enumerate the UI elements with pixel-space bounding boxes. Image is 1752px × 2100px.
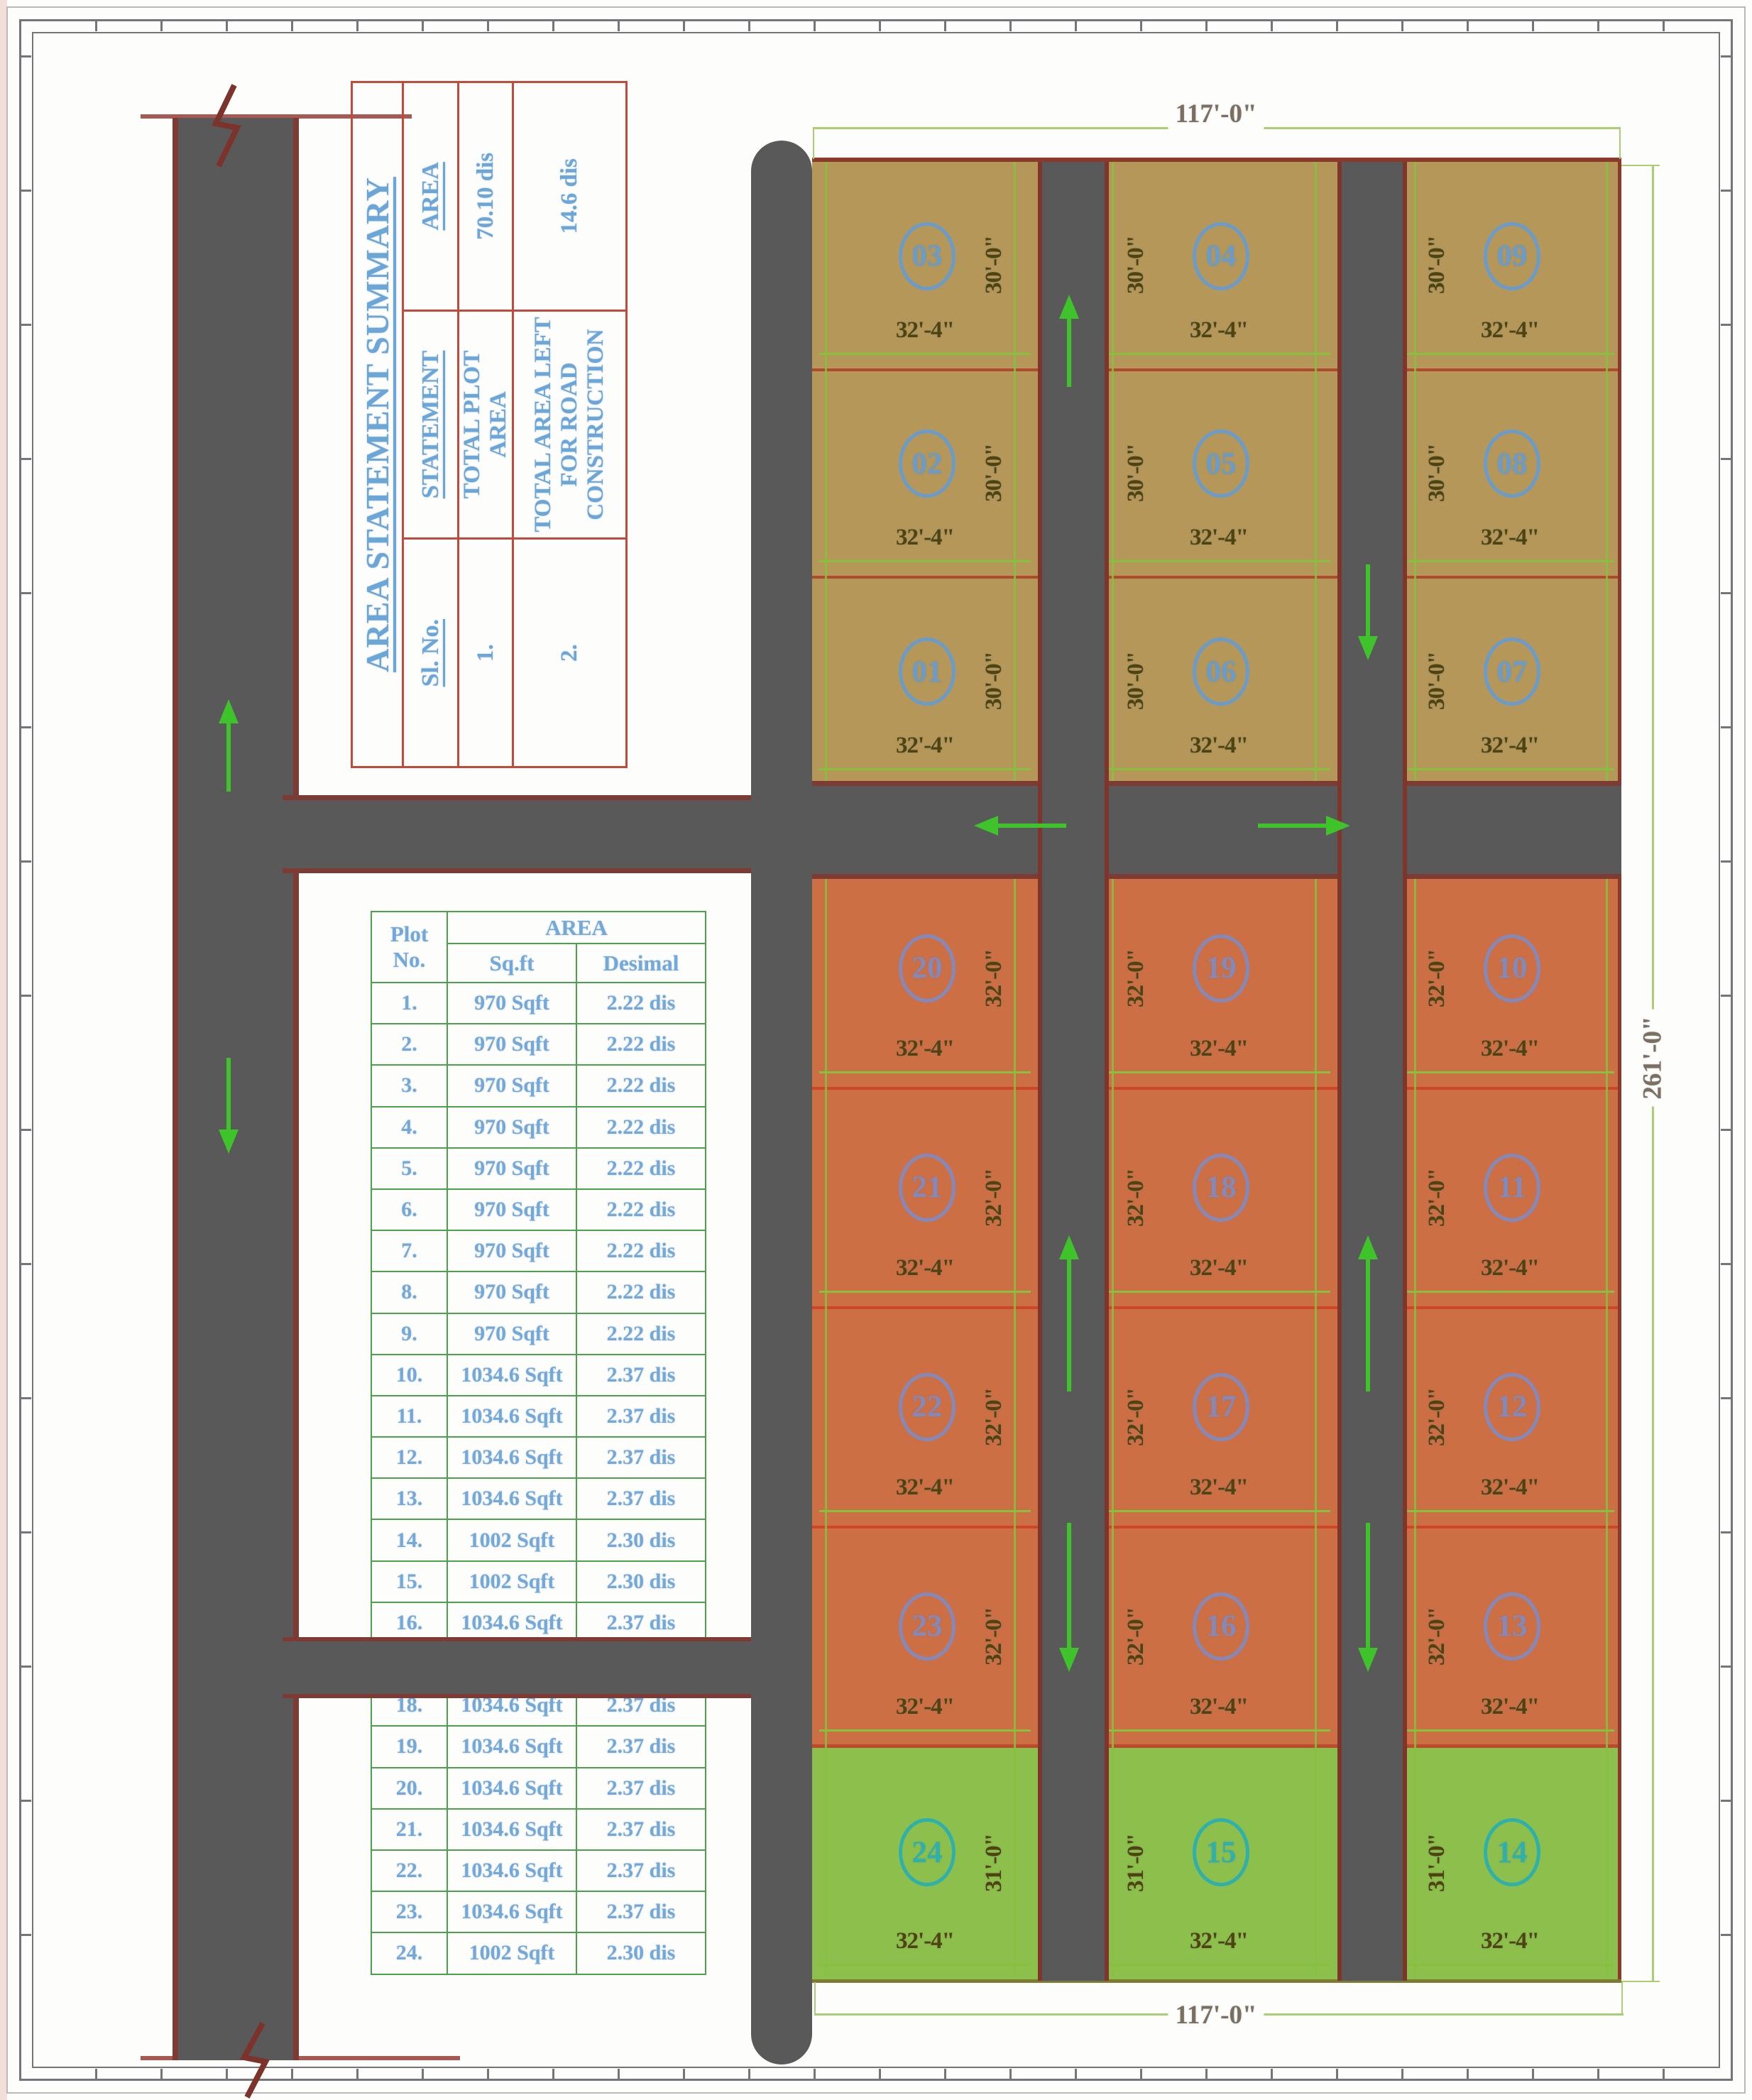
site-plan-sheet: 32'-4"30'-0"0332'-4"30'-0"0432'-4"30'-0"… [0,0,1752,2100]
arrow-down-head [1358,636,1378,660]
arrow-down-icon [1366,564,1370,640]
arrow-down-icon [226,1058,231,1134]
arrow-left-icon [994,824,1066,828]
arrow-down-icon [1067,1523,1071,1652]
arrow-down-head [1059,1648,1079,1672]
arrow-up-icon [1366,1255,1370,1391]
arrow-down-head [1358,1648,1378,1672]
arrow-down-head [219,1130,239,1154]
road-break-mark-top [204,84,250,168]
arrow-up-icon [226,719,231,792]
arrow-down-icon [1366,1523,1370,1652]
arrow-up-head [219,699,239,723]
arrow-right-icon [1258,824,1330,828]
arrow-right-head [1326,816,1350,836]
traffic-arrows-layer [0,0,1752,2100]
arrow-up-icon [1067,315,1071,387]
arrow-left-head [974,816,998,836]
arrow-up-icon [1067,1255,1071,1391]
arrow-up-head [1059,295,1079,319]
road-break-mark-bottom [234,2022,280,2099]
arrow-up-head [1059,1235,1079,1259]
arrow-up-head [1358,1235,1378,1259]
